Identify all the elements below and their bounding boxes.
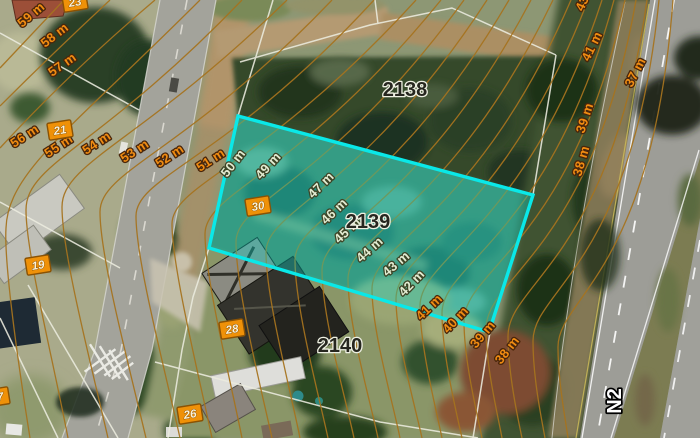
street-number-marker-19[interactable]: 19 [25,255,51,276]
aerial-map-canvas[interactable]: 59 m58 m57 m56 m55 m54 m53 m52 m51 m50 m… [0,0,700,438]
dark-roof-or-pool [0,297,41,348]
street-number-marker-30[interactable]: 30 [245,196,271,217]
street-number-marker-17[interactable]: 17 [0,387,10,408]
street-number-text: 30 [251,200,266,214]
street-number-text: 26 [182,408,198,422]
parcel-label-2138: 2138 [383,79,428,101]
highway-route-label: N2 [604,388,626,414]
parcel-label-2139: 2139 [346,211,391,233]
map-svg: 59 m58 m57 m56 m55 m54 m53 m52 m51 m50 m… [0,0,700,438]
street-number-marker-28[interactable]: 28 [219,319,245,340]
street-number-marker-26[interactable]: 26 [177,404,203,425]
parcel-label-2140: 2140 [318,335,363,357]
parked-car [6,423,23,435]
street-number-marker-21[interactable]: 21 [47,120,73,141]
street-number-text: 19 [31,259,46,273]
street-number-text: 28 [224,323,240,337]
street-number-text: 21 [52,124,68,138]
